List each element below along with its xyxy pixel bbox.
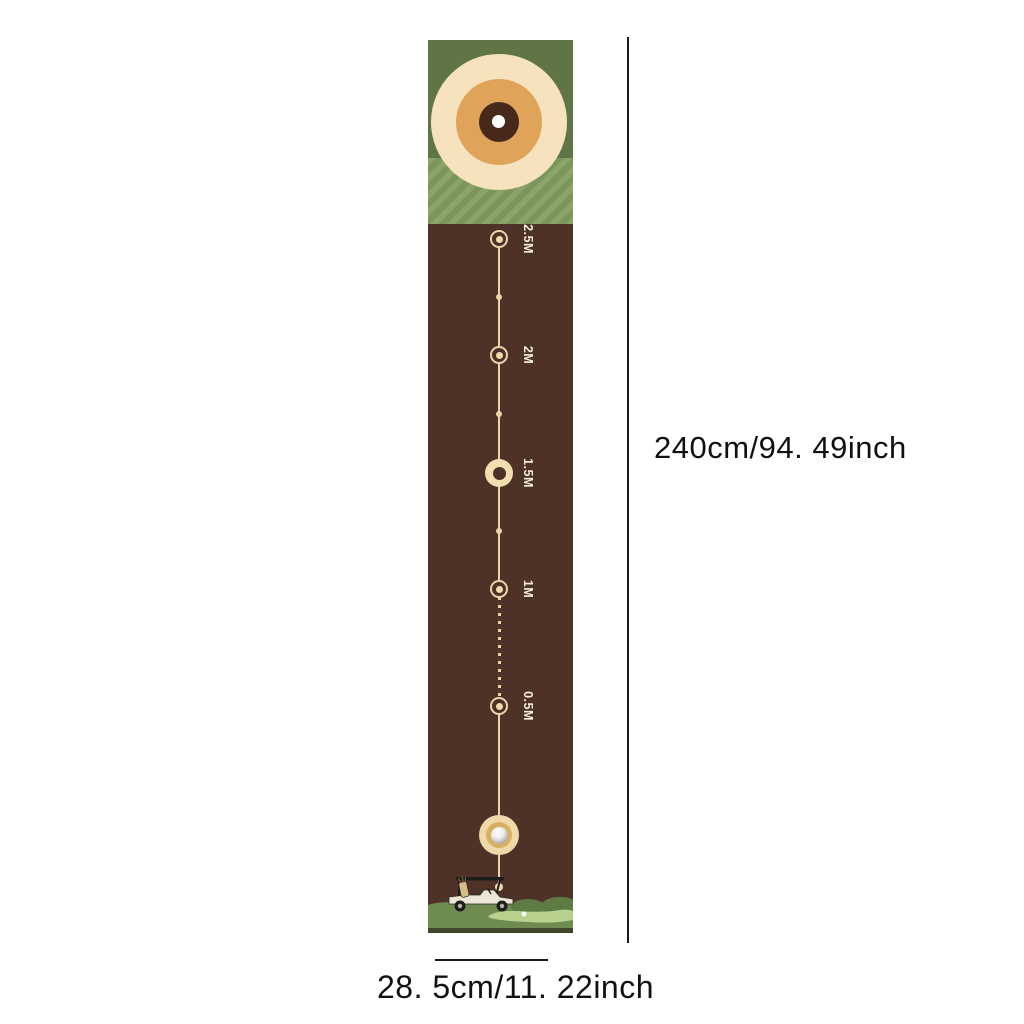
golf-ball-icon: [491, 827, 508, 844]
marker-ring-0-5m: [490, 697, 508, 715]
mid-dot: [496, 528, 502, 534]
width-dimension-line: [435, 959, 548, 961]
putting-mat: 2.5M 2M 1.5M 1M 0.5M: [428, 40, 573, 933]
marker-pip: [496, 352, 503, 359]
marker-pip: [496, 586, 503, 593]
marker-donut-1-5m: [485, 459, 513, 487]
marker-pip: [496, 703, 503, 710]
mid-dot: [496, 294, 502, 300]
golf-cart-icon: [444, 871, 522, 913]
ball-target: [479, 815, 519, 855]
distance-line-lower: [498, 706, 500, 889]
distance-label-0-5m: 0.5M: [521, 691, 535, 721]
distance-label-2-5m: 2.5M: [521, 224, 535, 254]
marker-pip: [496, 236, 503, 243]
distance-line-dotted: [498, 589, 501, 706]
product-image: 2.5M 2M 1.5M 1M 0.5M: [0, 0, 1024, 1024]
mid-dot: [496, 411, 502, 417]
marker-ring-2-5m: [490, 230, 508, 248]
marker-ring-2m: [490, 346, 508, 364]
height-dimension-line: [627, 37, 629, 943]
distance-label-1-5m: 1.5M: [521, 458, 535, 488]
height-dimension-label: 240cm/94. 49inch: [654, 430, 907, 466]
marker-ring-1m: [490, 580, 508, 598]
bullseye-hole: [492, 115, 505, 128]
distance-label-2m: 2M: [521, 346, 535, 364]
donut-hole: [493, 467, 506, 480]
distance-label-1m: 1M: [521, 580, 535, 598]
width-dimension-label: 28. 5cm/11. 22inch: [377, 969, 649, 1006]
